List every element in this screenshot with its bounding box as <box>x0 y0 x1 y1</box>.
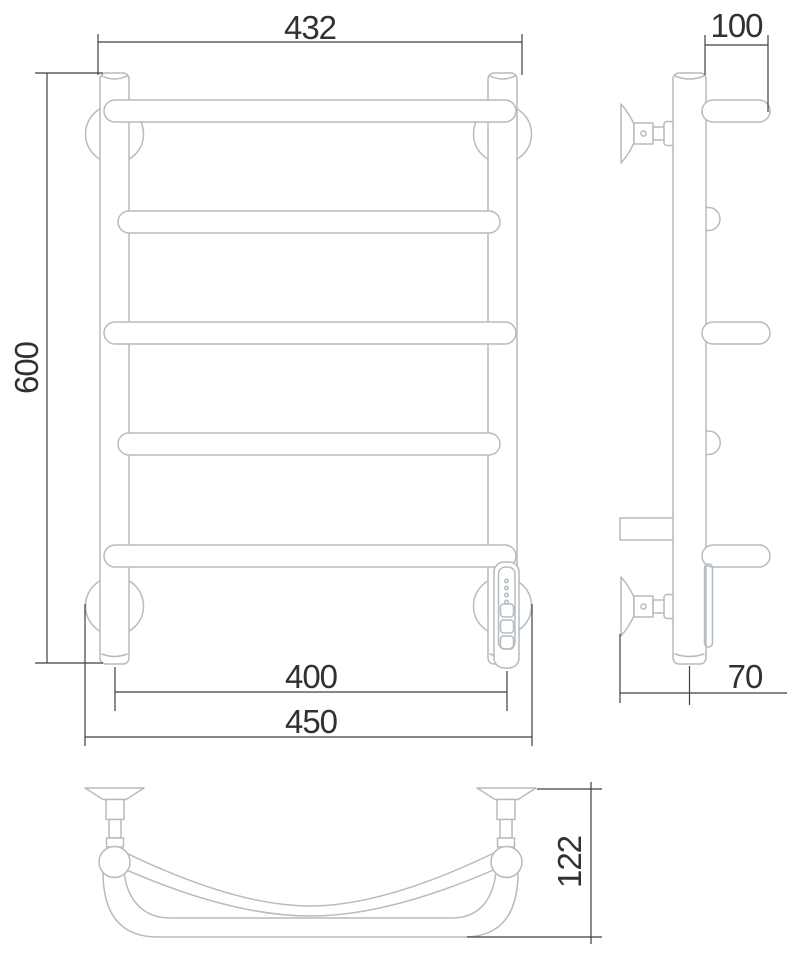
bracket-block <box>634 123 653 144</box>
plan-bracket-left <box>85 788 144 847</box>
front-view <box>86 73 532 668</box>
bowed-rung-inner-edge <box>124 852 496 906</box>
rung-stub <box>706 208 720 231</box>
wall-bracket-top <box>621 104 676 163</box>
plan-view <box>85 788 536 937</box>
dimension-top-width: 432 <box>98 9 522 75</box>
plan-bracket-right <box>477 788 536 847</box>
heater-plate <box>620 518 675 540</box>
wall-bracket-bottom <box>621 577 676 636</box>
rung-profile-5 <box>702 545 770 567</box>
technical-drawing-canvas: 432 600 400 450 <box>0 0 787 975</box>
bracket-flange <box>621 577 634 636</box>
bracket-shaft <box>109 820 121 839</box>
rung-2 <box>118 211 500 233</box>
bracket-collar <box>107 838 124 847</box>
left-pipe <box>100 73 129 664</box>
bracket-block <box>106 800 124 820</box>
bowed-rung-outer-edge <box>122 868 498 916</box>
dimension-height: 600 <box>8 73 103 663</box>
dimension-label-bottom-inner: 400 <box>285 658 338 695</box>
rung-profile-3 <box>702 322 770 344</box>
rung-stub <box>706 431 720 455</box>
side-view <box>620 73 770 664</box>
bracket-shaft <box>500 820 512 839</box>
side-pipe <box>673 73 706 664</box>
dimension-plan-depth: 122 <box>467 782 602 944</box>
bracket-block <box>634 596 653 617</box>
bracket-flange <box>477 788 536 800</box>
bracket-block <box>497 800 515 820</box>
dimension-top-depth: 100 <box>705 7 768 112</box>
rung-3 <box>104 322 516 344</box>
long-rung-outer-edge <box>103 872 518 937</box>
dimension-label-top-width: 432 <box>284 9 336 46</box>
towel-rail-drawing: 432 600 400 450 <box>0 0 787 975</box>
bracket-flange <box>85 788 144 800</box>
pipe-cross-section-right <box>491 847 522 878</box>
rung-4 <box>118 433 500 455</box>
control-unit <box>494 562 519 668</box>
bracket-collar <box>498 838 515 847</box>
dimension-label-top-depth: 100 <box>710 7 763 44</box>
rung-5 <box>104 545 516 567</box>
pipe-cross-section-left <box>99 847 130 878</box>
bracket-flange <box>621 104 634 163</box>
rung-1 <box>104 100 516 122</box>
dimension-label-wall-offset: 70 <box>728 658 763 695</box>
rung-profile-1 <box>702 100 770 122</box>
dimension-label-plan-depth: 122 <box>551 836 588 888</box>
dimension-lines <box>35 73 103 663</box>
dimension-label-bottom-outer: 450 <box>285 703 338 740</box>
dimension-label-height: 600 <box>8 341 45 394</box>
